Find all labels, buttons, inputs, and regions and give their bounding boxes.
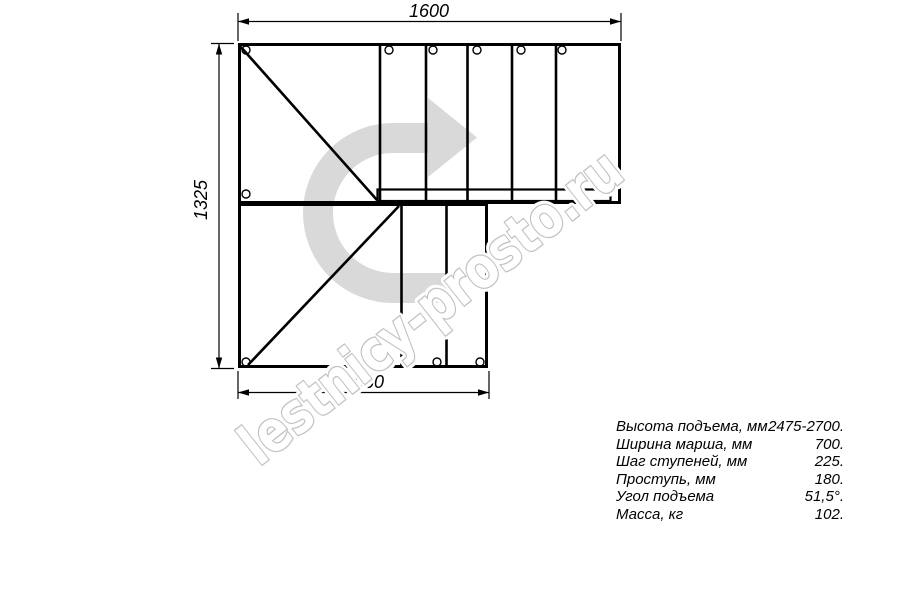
- dimension-top-label: 1600: [409, 1, 449, 21]
- dimension-left-label: 1325: [191, 179, 211, 220]
- mount-hole: [476, 358, 484, 366]
- spec-row-mass: Масса, кг 102.: [616, 506, 844, 524]
- dimension-top-width: 1600: [238, 1, 621, 41]
- dimension-left-height: 1325: [191, 44, 234, 369]
- spec-label: Ширина марша, мм: [616, 436, 752, 454]
- spec-label: Шаг ступеней, мм: [616, 453, 747, 471]
- mount-hole: [242, 358, 250, 366]
- dim-arrow-left-icon: [238, 18, 249, 24]
- spec-label: Проступь, мм: [616, 471, 716, 489]
- spec-row-angle: Угол подъема 51,5°.: [616, 488, 844, 506]
- spec-value: 180.: [815, 471, 844, 489]
- dim-arrow-up-icon: [216, 44, 222, 55]
- spec-value: 2475-2700.: [768, 418, 844, 436]
- dim-arrow-left-icon: [238, 389, 249, 395]
- spec-row-flight-width: Ширина марша, мм 700.: [616, 436, 844, 454]
- dim-arrow-right-icon: [610, 18, 621, 24]
- spec-table: Высота подъема, мм 2475-2700. Ширина мар…: [616, 418, 844, 524]
- spec-value: 51,5°.: [805, 488, 844, 506]
- spec-row-tread: Проступь, мм 180.: [616, 471, 844, 489]
- spec-value: 225.: [815, 453, 844, 471]
- spec-value: 102.: [815, 506, 844, 524]
- dim-arrow-down-icon: [216, 358, 222, 369]
- mount-hole: [433, 358, 441, 366]
- spec-label: Высота подъема, мм: [616, 418, 768, 436]
- spec-label: Угол подъема: [616, 488, 714, 506]
- spec-label: Масса, кг: [616, 506, 683, 524]
- spec-row-height: Высота подъема, мм 2475-2700.: [616, 418, 844, 436]
- spec-value: 700.: [815, 436, 844, 454]
- spec-row-step-pitch: Шаг ступеней, мм 225.: [616, 453, 844, 471]
- dim-arrow-right-icon: [478, 389, 489, 395]
- stair-plan-drawing: 1600 1325 1060 lestnicy-prosto.ru lestni…: [0, 0, 900, 600]
